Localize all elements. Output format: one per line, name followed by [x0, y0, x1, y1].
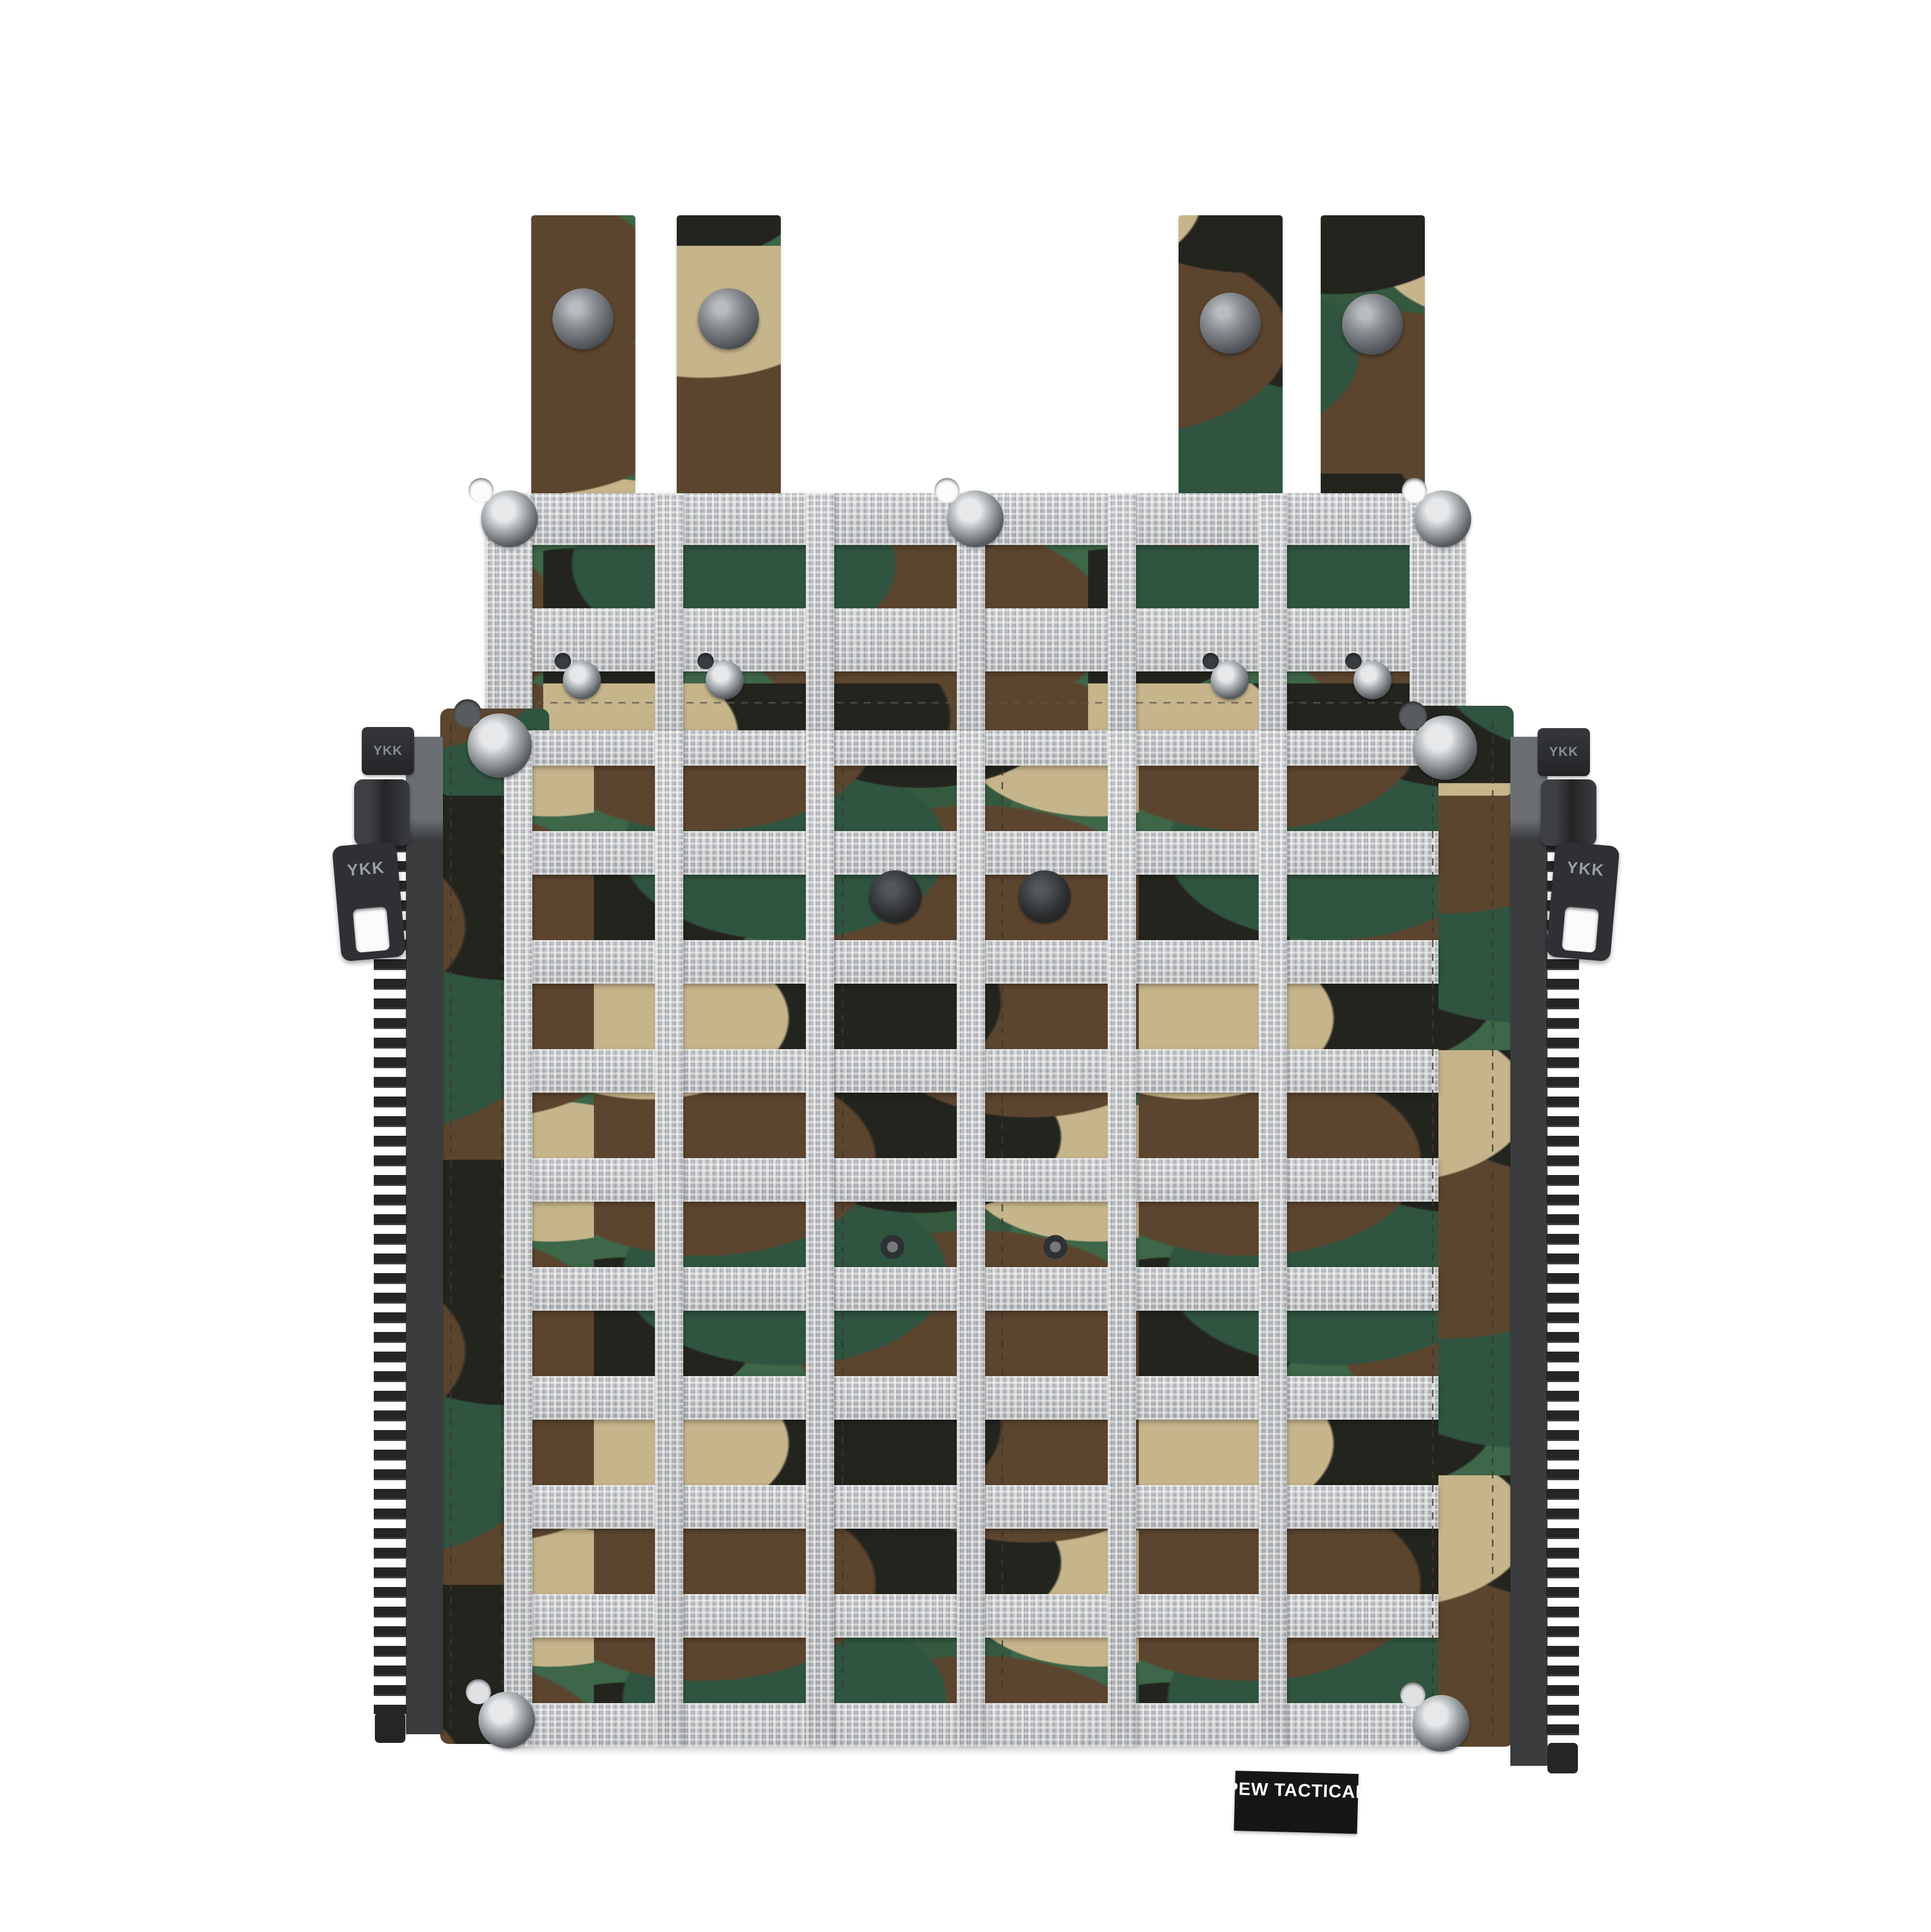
left-zipper-bottom-stop [375, 1712, 405, 1743]
left-zipper-pull-hole [353, 906, 390, 953]
right-zipper-tape [1510, 737, 1547, 1766]
zippers-layer: YKKYKKYKKYKK [0, 0, 1931, 1932]
product-photo-canvas: PEW TACTICAL YKKYKKYKKYKK [0, 0, 1931, 1932]
right-zipper-slider [1541, 779, 1596, 846]
right-zipper-pull-text: YKK [1553, 857, 1619, 881]
left-zipper-pull-text: YKK [333, 857, 399, 881]
left-zipper-box-text: YKK [373, 743, 403, 759]
right-zipper-top-box: YKK [1538, 728, 1590, 776]
left-zipper-pull: YKK [332, 841, 406, 961]
right-zipper-box-text: YKK [1549, 744, 1578, 760]
right-zipper-bottom-stop [1547, 1743, 1578, 1773]
left-zipper-tape [406, 737, 443, 1734]
left-zipper-slider [354, 779, 410, 846]
right-zipper-pull-hole [1562, 906, 1599, 953]
left-zipper-top-box: YKK [362, 727, 414, 775]
right-zipper-pull: YKK [1546, 841, 1620, 961]
